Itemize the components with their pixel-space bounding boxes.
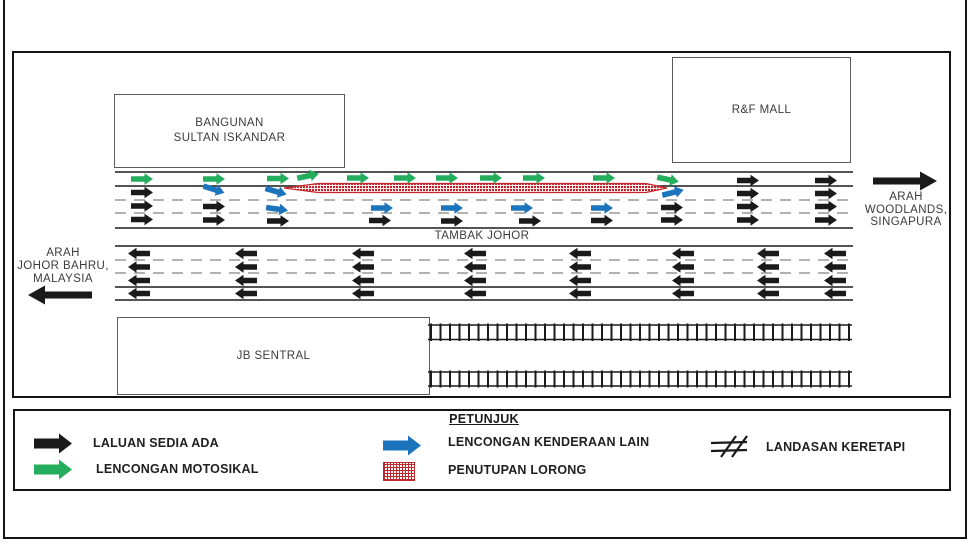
direction-label-johor-bahru: ARAH JOHOR BAHRU, MALAYSIA: [8, 247, 118, 286]
black-arrow-icon: [33, 433, 73, 454]
legend-label-lane-closure: PENUTUPAN LORONG: [448, 463, 586, 477]
causeway-label: TAMBAK JOHOR: [420, 230, 544, 243]
traffic-diversion-diagram-page: BANGUNAN SULTAN ISKANDAR R&F MALL JB SEN…: [0, 0, 970, 545]
green-arrow-icon: [33, 459, 73, 480]
building-label-line: SULTAN ISKANDAR: [174, 131, 286, 146]
legend-title: PETUNJUK: [438, 412, 530, 426]
building-jb-sentral: JB SENTRAL: [117, 317, 430, 395]
direction-label-woodlands: ARAH WOODLANDS, SINGAPURA: [853, 191, 959, 229]
building-label-line: JB SENTRAL: [237, 349, 311, 364]
legend-label-other-vehicle-diversion: LENCONGAN KENDERAAN LAIN: [448, 435, 649, 449]
blue-arrow-icon: [382, 435, 422, 456]
building-label-line: R&F MALL: [732, 103, 791, 118]
railway-icon: [708, 434, 754, 460]
legend-label-motorcycle-diversion: LENCONGAN MOTOSIKAL: [96, 462, 259, 476]
legend-label-railway: LANDASAN KERETAPI: [766, 440, 905, 454]
red-hatch-icon: [383, 462, 415, 481]
building-rf-mall: R&F MALL: [672, 57, 851, 163]
building-label-line: BANGUNAN: [195, 116, 263, 131]
legend-label-existing-route: LALUAN SEDIA ADA: [93, 436, 219, 450]
building-bangunan-sultan-iskandar: BANGUNAN SULTAN ISKANDAR: [114, 94, 345, 168]
